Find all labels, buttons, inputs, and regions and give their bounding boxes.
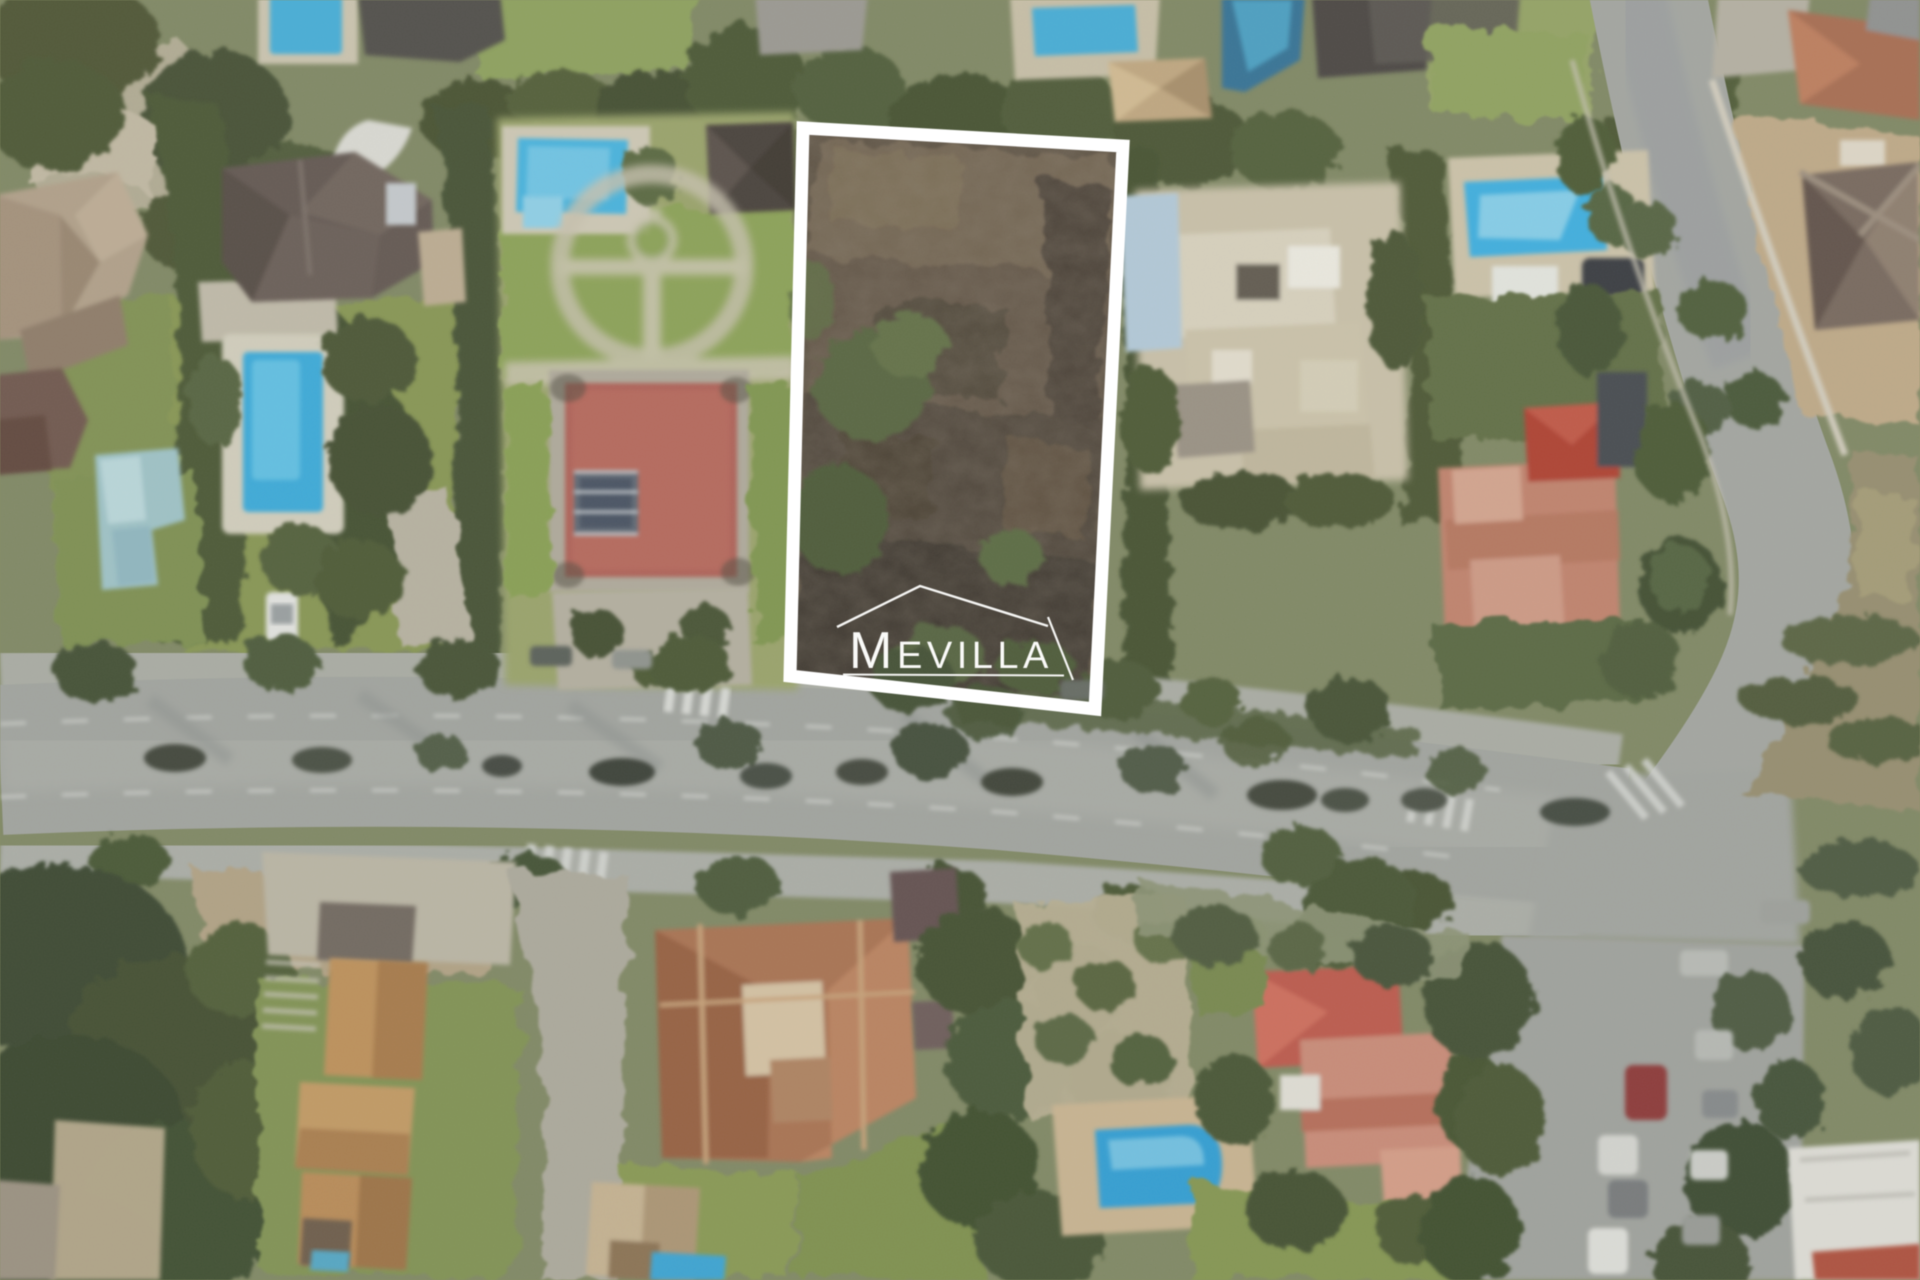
- svg-text:EVILLA: EVILLA: [897, 635, 1053, 677]
- svg-text:M: M: [849, 622, 896, 680]
